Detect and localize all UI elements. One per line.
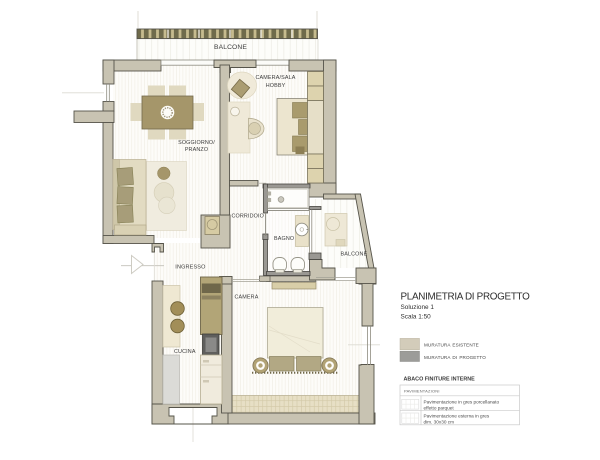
svg-text:CAMERA/SALA: CAMERA/SALA [256,75,296,81]
svg-text:PRANZO: PRANZO [185,147,208,153]
svg-text:effetto parquet: effetto parquet [424,405,455,410]
svg-text:SOGGIORNO/: SOGGIORNO/ [178,140,215,146]
svg-text:Soluzione 1: Soluzione 1 [401,304,435,311]
svg-text:PAVIMENTAZIONI: PAVIMENTAZIONI [404,388,440,393]
svg-text:BALCONE: BALCONE [341,252,368,258]
svg-text:Pavimentazione esterna in gres: Pavimentazione esterna in gres [424,413,490,418]
svg-text:Scala 1:50: Scala 1:50 [401,314,432,321]
svg-text:INGRESSO: INGRESSO [175,265,206,271]
svg-text:ABACO FINITURE INTERNE: ABACO FINITURE INTERNE [404,377,476,383]
svg-text:HOBBY: HOBBY [266,83,286,89]
svg-text:CORRIDOIO: CORRIDOIO [232,213,265,219]
svg-text:dim. 30x30 cm: dim. 30x30 cm [424,419,455,424]
svg-text:Pavimentazione in gres porcell: Pavimentazione in gres porcellanato [424,399,500,404]
svg-text:CAMERA: CAMERA [235,295,259,301]
svg-text:BAGNO: BAGNO [274,236,294,242]
svg-text:BALCONE: BALCONE [214,44,247,51]
svg-text:MURATURA ESISTENTE: MURATURA ESISTENTE [424,342,479,347]
svg-text:MURATURA DI PROGETTO: MURATURA DI PROGETTO [424,355,486,360]
svg-text:CUCINA: CUCINA [174,349,196,355]
svg-text:PLANIMETRIA DI PROGETTO: PLANIMETRIA DI PROGETTO [401,292,531,303]
